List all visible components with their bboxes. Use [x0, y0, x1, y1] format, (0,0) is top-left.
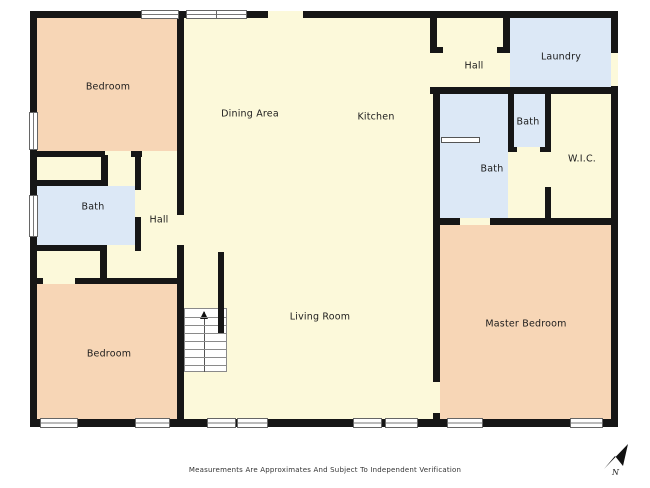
window: [29, 195, 38, 237]
wall-segment: [177, 245, 184, 427]
wall-segment: [508, 94, 514, 152]
stair-tread-line: [185, 341, 226, 342]
wall-segment: [433, 413, 440, 427]
wall-segment: [508, 147, 517, 152]
room-bath-left: [37, 186, 135, 245]
room-label-bedroom-bottom: Bedroom: [87, 349, 131, 360]
room-bath-master: [440, 94, 508, 218]
stair-tread-line: [185, 349, 226, 350]
wall-segment: [540, 147, 551, 152]
wall-segment: [433, 218, 460, 225]
bath-vanity: [441, 137, 480, 143]
stairs-stringer-line: [204, 312, 205, 372]
wall-segment: [437, 47, 443, 53]
wall-segment: [497, 47, 503, 53]
room-label-bath-small: Bath: [517, 117, 540, 128]
wall-segment: [30, 180, 108, 186]
wall-segment: [177, 11, 184, 215]
stair-tread-line: [185, 333, 226, 334]
room-label-bedroom-top: Bedroom: [86, 82, 130, 93]
wall-segment: [30, 151, 105, 157]
window: [570, 418, 603, 428]
window: [207, 418, 236, 428]
wall-segment: [545, 94, 551, 152]
room-label-bath-master: Bath: [481, 164, 504, 175]
door-opening: [268, 11, 303, 18]
wall-segment: [30, 11, 618, 18]
room-label-living: Living Room: [290, 312, 351, 323]
wall-segment: [433, 94, 440, 382]
wall-segment: [101, 155, 108, 182]
disclaimer-text: Measurements Are Approximates And Subjec…: [189, 466, 461, 474]
floor-plan-canvas: Bedroom Dining Area Kitchen Hall Laundry…: [0, 0, 650, 488]
window: [447, 418, 483, 428]
room-label-laundry: Laundry: [541, 52, 581, 63]
wall-segment: [218, 252, 224, 333]
window: [29, 112, 38, 150]
room-label-master-bedroom: Master Bedroom: [485, 319, 566, 330]
room-label-bath-left: Bath: [82, 202, 105, 213]
window: [186, 10, 217, 19]
wall-segment: [430, 11, 437, 53]
window: [385, 418, 418, 428]
room-label-wic: W.I.C.: [568, 154, 596, 165]
room-label-hall-left: Hall: [149, 215, 168, 226]
window: [40, 418, 78, 428]
window: [216, 10, 247, 19]
window: [237, 418, 268, 428]
stair-tread-line: [185, 365, 226, 366]
wall-segment: [75, 278, 184, 284]
window: [353, 418, 382, 428]
room-label-hall-top: Hall: [464, 61, 483, 72]
wall-segment: [131, 151, 142, 157]
wall-segment: [30, 419, 618, 427]
window: [135, 418, 170, 428]
wall-segment: [135, 217, 141, 251]
wall-segment: [30, 245, 107, 251]
stair-tread-line: [185, 357, 226, 358]
window: [141, 10, 179, 19]
room-label-dining: Dining Area: [221, 109, 279, 120]
door-opening: [611, 53, 618, 86]
wall-segment: [490, 218, 618, 225]
wall-segment: [503, 11, 510, 53]
wall-segment: [430, 87, 618, 94]
north-label: N: [612, 468, 619, 477]
room-label-kitchen: Kitchen: [357, 112, 394, 123]
wall-segment: [30, 278, 43, 284]
